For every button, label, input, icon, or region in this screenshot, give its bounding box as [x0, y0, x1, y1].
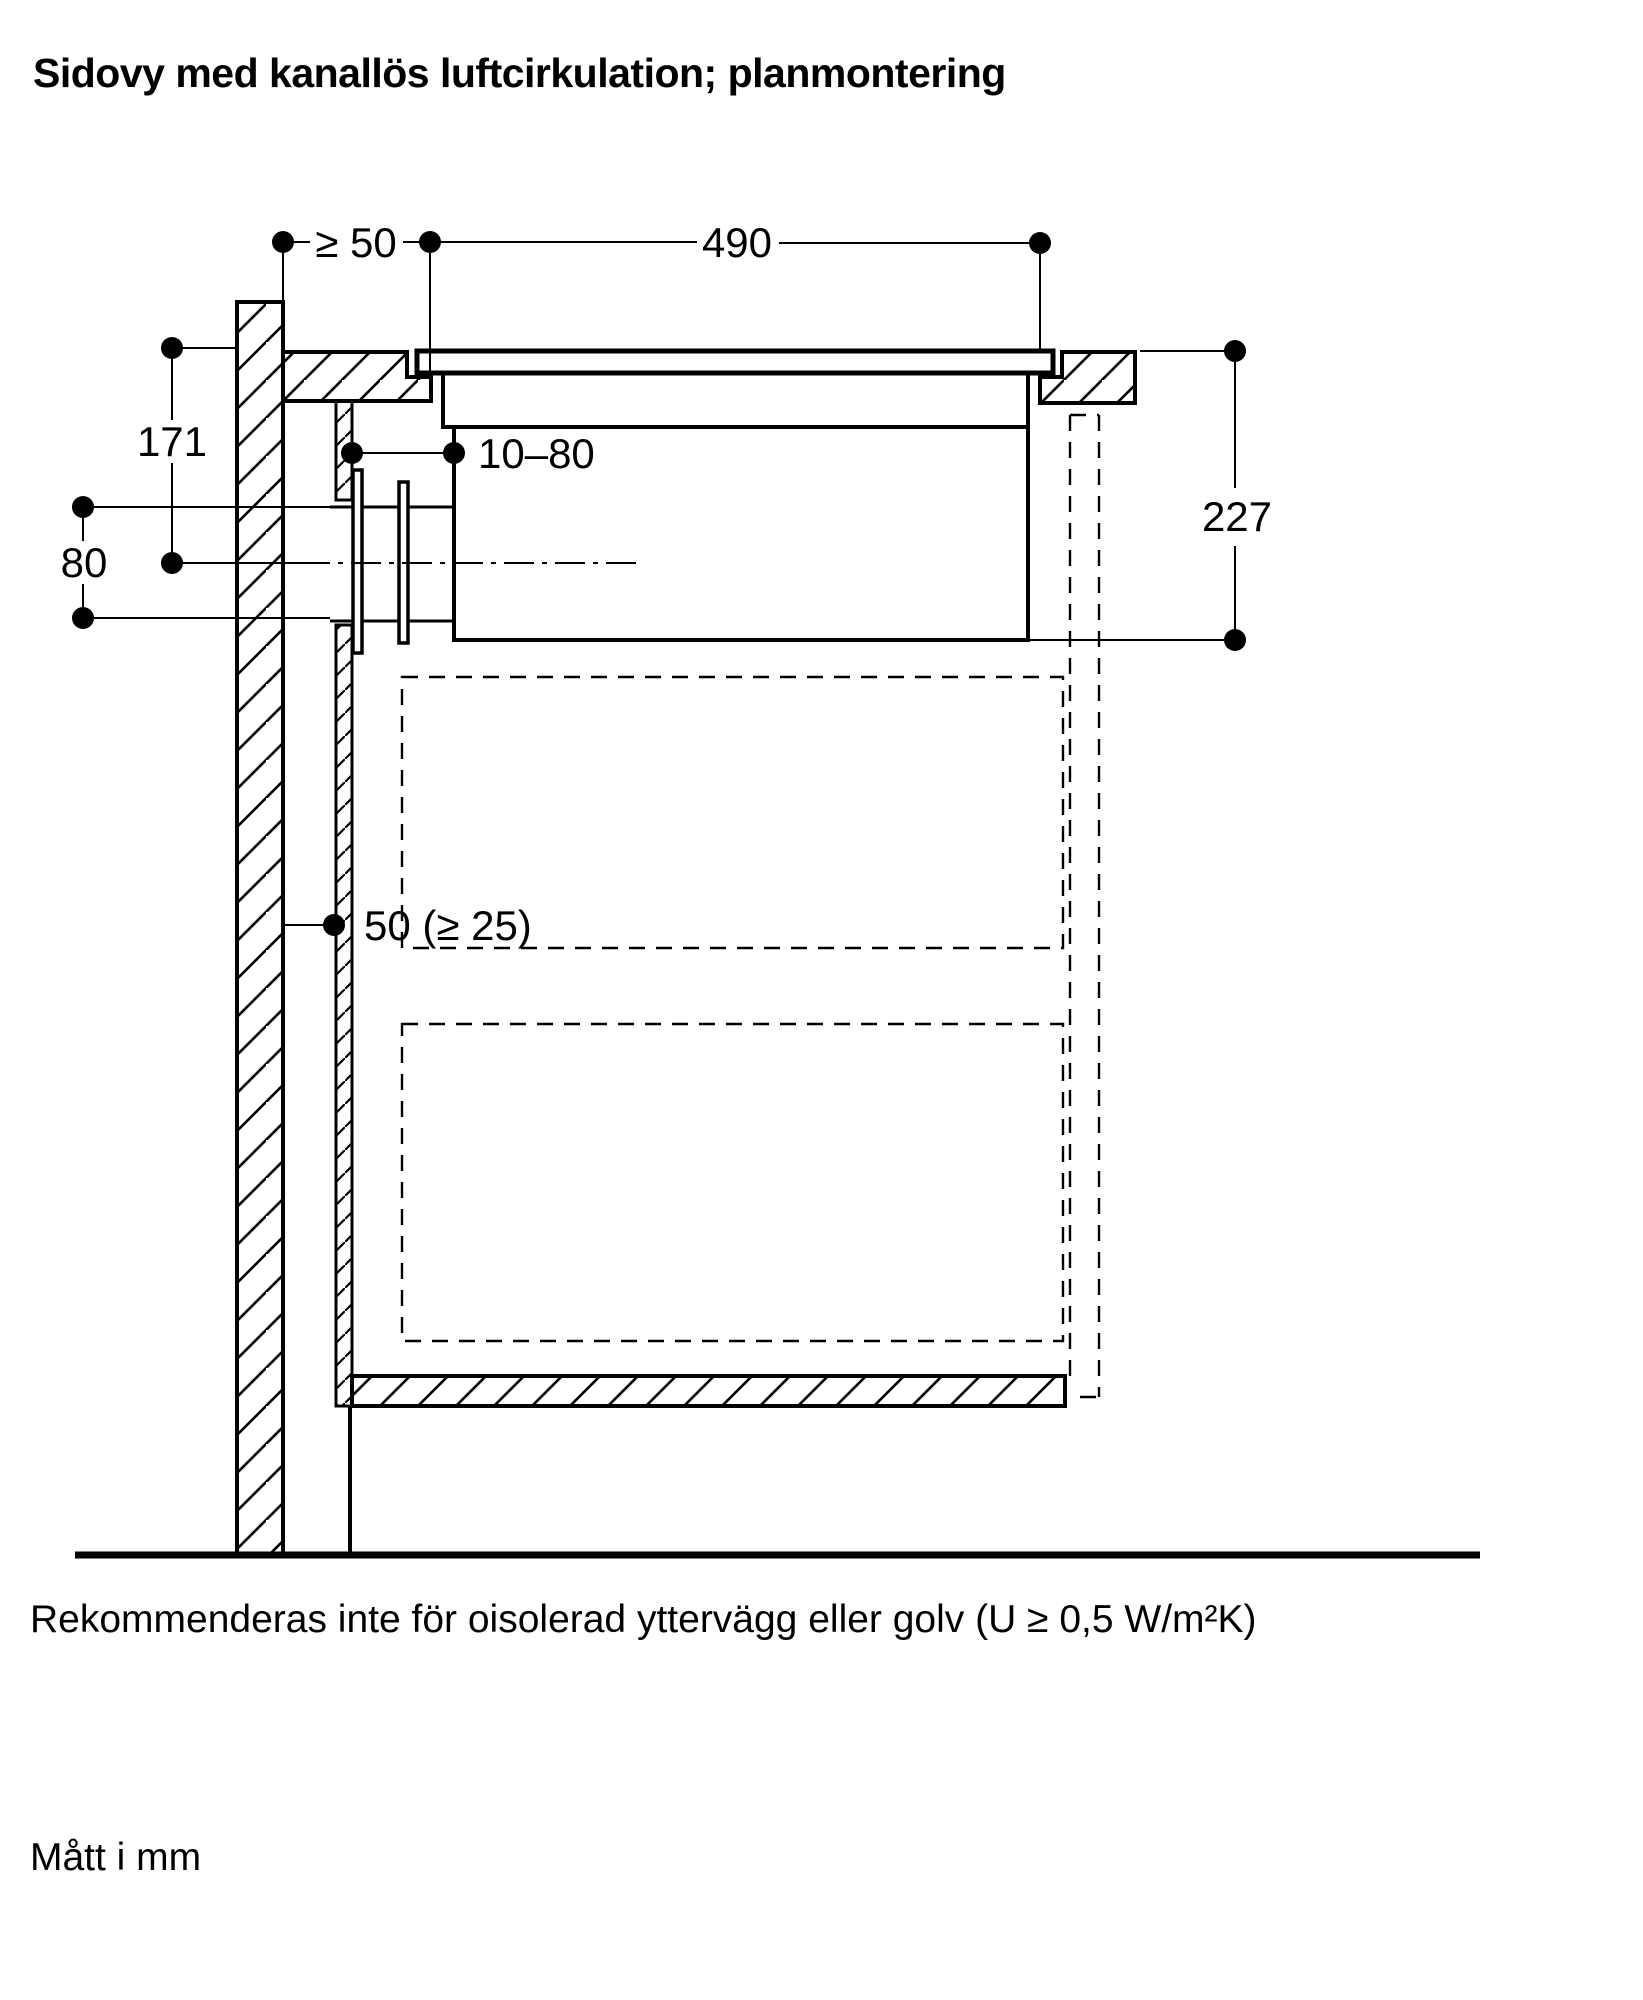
duct-flange-wall-side [353, 470, 362, 653]
footnote-text: Rekommenderas inte för oisolerad yttervä… [30, 1598, 1257, 1642]
cabinet-bottom-shelf [352, 1376, 1065, 1406]
installation-diagram: ≥ 50 490 171 80 [0, 0, 1643, 2000]
dim-label-wall-to-cutout: ≥ 50 [315, 219, 396, 266]
worktop-left-section [283, 352, 431, 401]
clearance-zone-lower [402, 1024, 1063, 1341]
dim-label-panel-to-appliance: 10–80 [478, 430, 595, 477]
cabinet-panel-dashed-right [1070, 415, 1099, 1397]
dim-label-cutout-width: 490 [702, 219, 772, 266]
dim-wall-to-panel: 50 (≥ 25) [283, 902, 532, 949]
dim-label-top-to-duct-center: 171 [137, 418, 207, 465]
dim-label-appliance-height: 227 [1202, 493, 1272, 540]
page: Sidovy med kanallös luftcirkulation; pla… [0, 0, 1643, 2000]
hob-top-frame [443, 373, 1028, 427]
cabinet-panel-lower [336, 625, 352, 1406]
dim-label-wall-to-panel: 50 (≥ 25) [364, 902, 532, 949]
dim-cutout-width: 490 [441, 219, 1051, 349]
dim-label-duct-height: 80 [61, 539, 108, 586]
cooktop-glass [417, 351, 1053, 373]
units-note: Mått i mm [30, 1836, 201, 1880]
wall-section [237, 302, 283, 1555]
